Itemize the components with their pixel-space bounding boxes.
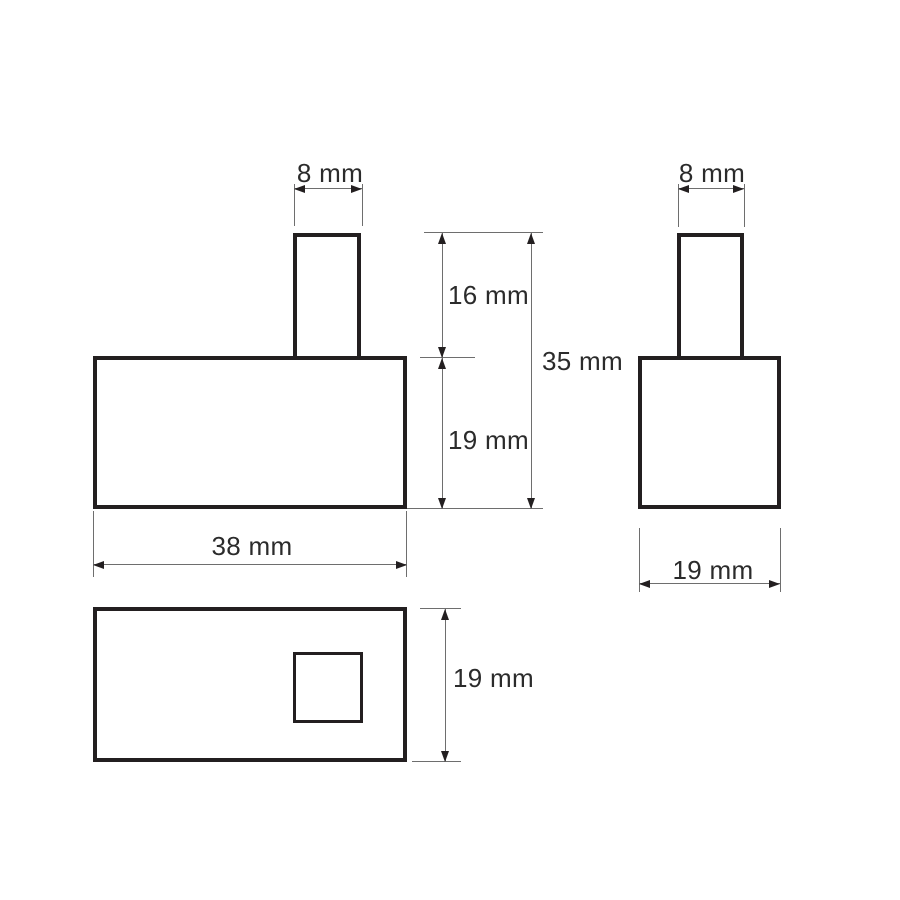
side-stem-width-dim-label: 8 mm [679, 160, 745, 186]
arrowhead-right-icon [351, 185, 362, 193]
extension-line [744, 184, 745, 227]
extension-line [780, 528, 781, 592]
front-stem-outline [293, 233, 361, 356]
side-stem-outline [677, 233, 744, 356]
top-stem-outline [293, 652, 363, 723]
arrowhead-down-icon [438, 498, 446, 509]
arrowhead-up-icon [438, 358, 446, 369]
arrowhead-right-icon [769, 580, 780, 588]
arrowhead-up-icon [527, 233, 535, 244]
dimension-line [531, 233, 532, 509]
front-stem-height-dim-label: 16 mm [448, 282, 529, 308]
front-total-height-dim-label: 35 mm [542, 348, 623, 374]
dimension-line [442, 358, 443, 509]
dimension-line [442, 233, 443, 358]
extension-line [412, 761, 461, 762]
side-body-width-dim-label: 19 mm [673, 557, 754, 583]
top-depth-dim-label: 19 mm [453, 665, 534, 691]
dimension-line [93, 564, 407, 565]
extension-line [420, 357, 475, 358]
arrowhead-right-icon [733, 185, 744, 193]
technical-drawing-canvas: 8 mm 16 mm 19 mm 35 mm 38 mm [0, 0, 900, 900]
dimension-line [445, 609, 446, 762]
front-body-outline [93, 356, 407, 509]
arrowhead-down-icon [441, 751, 449, 762]
extension-line [407, 508, 543, 509]
front-body-width-dim-label: 38 mm [212, 533, 293, 559]
arrowhead-left-icon [678, 185, 689, 193]
arrowhead-left-icon [639, 580, 650, 588]
arrowhead-right-icon [396, 561, 407, 569]
arrowhead-up-icon [438, 233, 446, 244]
front-stem-width-dim-label: 8 mm [297, 160, 363, 186]
arrowhead-up-icon [441, 609, 449, 620]
arrowhead-down-icon [527, 498, 535, 509]
front-body-height-dim-label: 19 mm [448, 427, 529, 453]
extension-line [362, 184, 363, 226]
arrowhead-left-icon [294, 185, 305, 193]
arrowhead-left-icon [93, 561, 104, 569]
arrowhead-down-icon [438, 347, 446, 358]
side-body-outline [638, 356, 781, 509]
